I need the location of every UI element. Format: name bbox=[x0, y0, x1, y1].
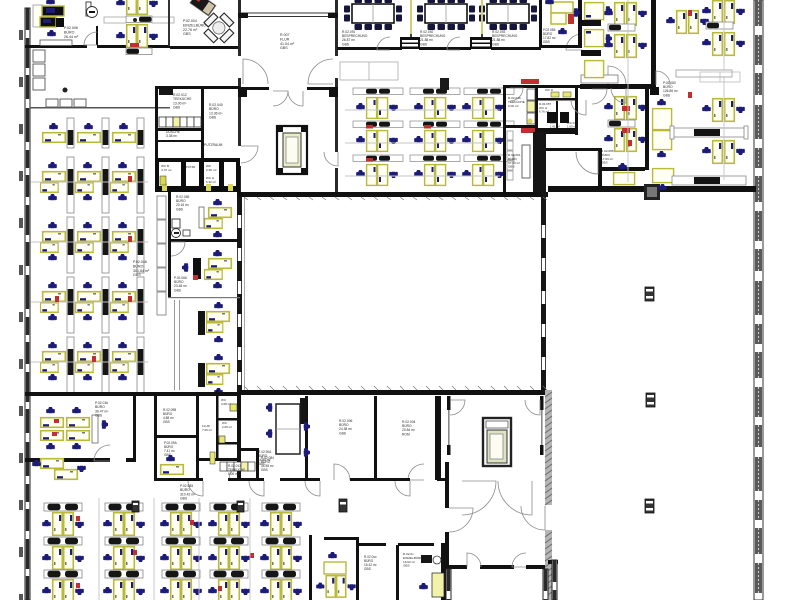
svg-text:PUTZR: PUTZR bbox=[186, 165, 195, 169]
svg-text:WC D: WC D bbox=[545, 88, 554, 92]
svg-text:PUTZRAUM: PUTZRAUM bbox=[204, 143, 223, 147]
